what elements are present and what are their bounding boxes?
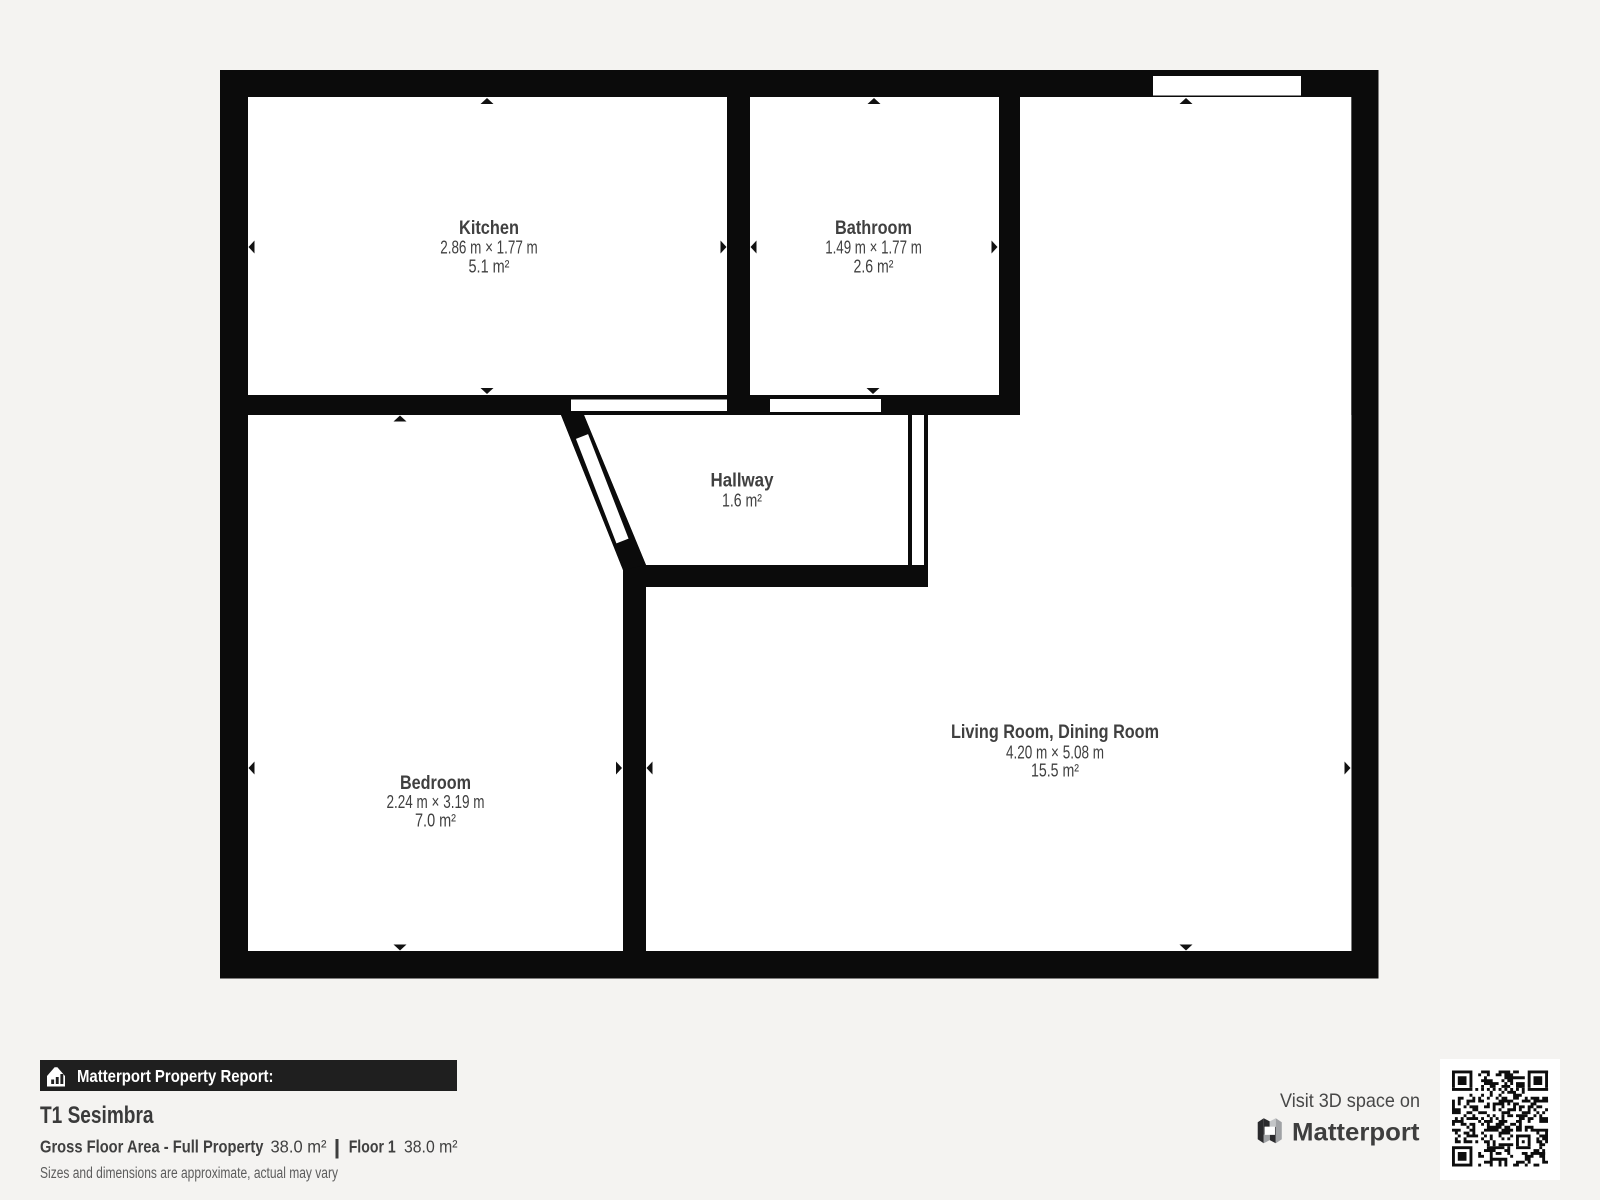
- svg-text:Matterport: Matterport: [1292, 1119, 1420, 1147]
- svg-text:38.0 m²: 38.0 m²: [271, 1137, 327, 1157]
- svg-text:4.20 m × 5.08 m: 4.20 m × 5.08 m: [1006, 743, 1104, 763]
- svg-text:Floor 1: Floor 1: [349, 1137, 396, 1157]
- svg-text:1.6 m²: 1.6 m²: [722, 491, 762, 511]
- svg-text:Bedroom: Bedroom: [400, 773, 471, 794]
- svg-text:2.24 m × 3.19 m: 2.24 m × 3.19 m: [387, 792, 485, 812]
- svg-text:Visit 3D space on: Visit 3D space on: [1280, 1090, 1420, 1112]
- svg-text:2.6 m²: 2.6 m²: [854, 257, 894, 277]
- svg-text:2.86 m × 1.77 m: 2.86 m × 1.77 m: [440, 238, 538, 258]
- svg-text:5.1 m²: 5.1 m²: [469, 257, 510, 277]
- svg-text:7.0 m²: 7.0 m²: [415, 811, 456, 831]
- svg-text:Sizes and dimensions are appro: Sizes and dimensions are approximate, ac…: [40, 1165, 338, 1182]
- svg-text:Kitchen: Kitchen: [459, 218, 519, 239]
- svg-text:T1 Sesimbra: T1 Sesimbra: [40, 1102, 154, 1129]
- svg-text:Matterport Property Report:: Matterport Property Report:: [77, 1066, 274, 1086]
- svg-text:Gross Floor Area - Full Proper: Gross Floor Area - Full Property: [40, 1137, 264, 1157]
- svg-text:38.0 m²: 38.0 m²: [404, 1137, 458, 1157]
- svg-text:15.5 m²: 15.5 m²: [1031, 761, 1079, 781]
- svg-text:Bathroom: Bathroom: [835, 218, 912, 239]
- svg-text:1.49 m × 1.77 m: 1.49 m × 1.77 m: [825, 238, 922, 258]
- svg-text:Hallway: Hallway: [711, 471, 774, 492]
- svg-text:Living Room, Dining Room: Living Room, Dining Room: [951, 722, 1159, 743]
